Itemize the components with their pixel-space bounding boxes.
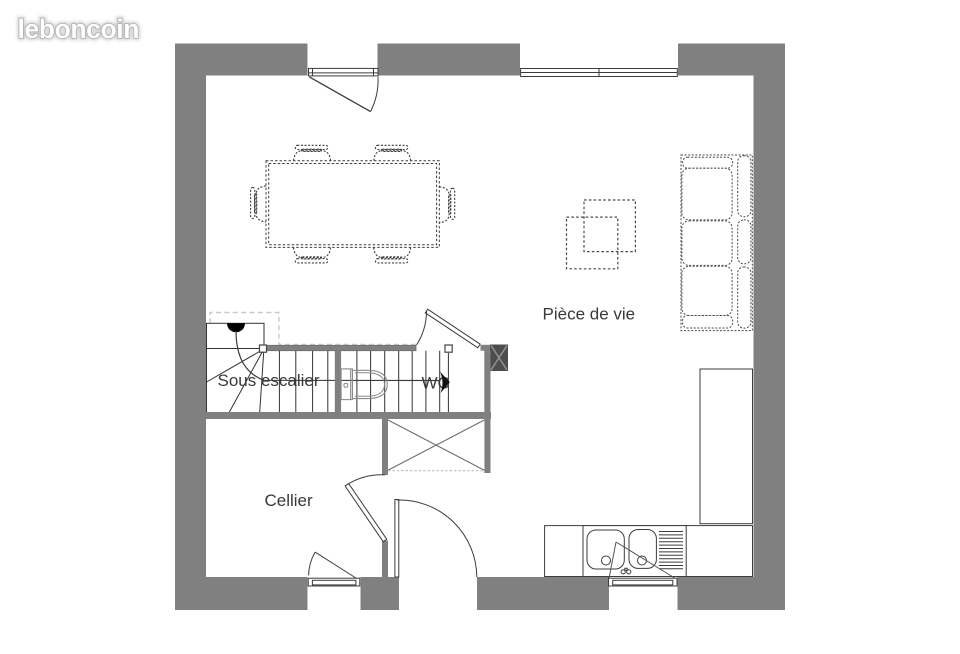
svg-text:Sous escalier: Sous escalier bbox=[218, 371, 320, 390]
svg-text:Cellier: Cellier bbox=[265, 491, 314, 510]
svg-text:leboncoin: leboncoin bbox=[18, 14, 140, 44]
svg-text:Pièce de vie: Pièce de vie bbox=[543, 305, 636, 324]
